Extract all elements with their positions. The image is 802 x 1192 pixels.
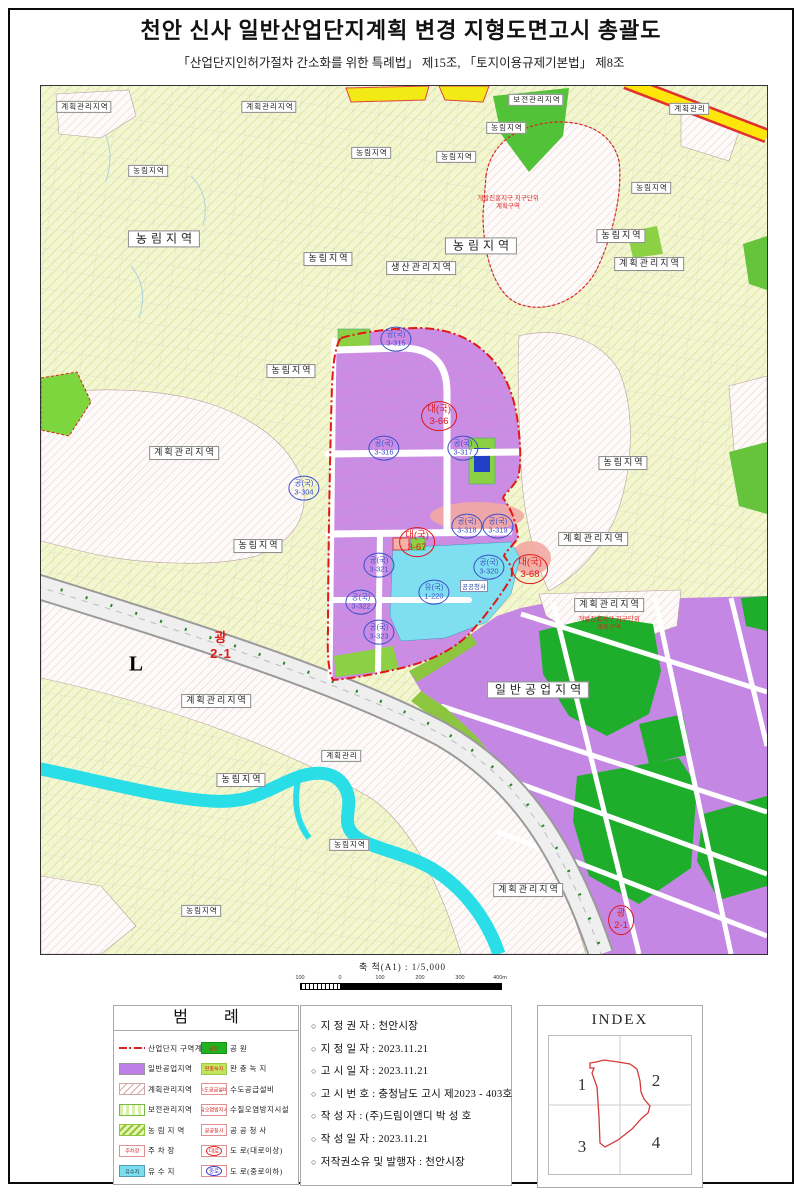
info-bullet: ○ [311,1134,317,1144]
legend-swatch-ygreen: 완충녹지 [201,1063,227,1075]
legend-item: 대로도 로(대로이상) [201,1141,295,1162]
legend-item-label: 계획관리지역 [148,1084,192,1095]
legend-item-label: 도 로(대로이상) [230,1145,283,1156]
legend-item: 공공청사공 공 청 사 [201,1120,295,1141]
info-item: ○지 정 일 자 : 2023.11.21 [311,1041,511,1064]
legend-column-right: 공원공 원완충녹지완 충 녹 지수도공급설비수도공급설비수질오염방지시설수질오염… [201,1038,295,1182]
legend-swatch-symbol: 중로 [206,1166,222,1176]
legend-swatch-cyan: 유수지 [119,1165,145,1177]
info-bullet: ○ [311,1066,317,1076]
scale-block: 축 척(A1) : 1/5,000 1000100200300400m [300,960,505,989]
legend-item-label: 산업단지 구역계 [148,1043,202,1054]
legend-swatch-symbol: 수질오염방지시설 [201,1106,227,1114]
legend-item: 수도공급설비수도공급설비 [201,1079,295,1100]
legend-item-label: 유 수 지 [148,1166,175,1177]
legend-swatch-symbox: 수질오염방지시설 [201,1104,227,1116]
legend-item: 공원공 원 [201,1038,295,1059]
legend-item-label: 공 공 청 사 [230,1125,267,1136]
legend-swatch-symbox: 공공청사 [201,1124,227,1136]
legend-item: 주차장주 차 장 [119,1141,201,1162]
legend-swatch-symbol: 대로 [206,1146,222,1156]
info-text: 작 성 자 : (주)드림이앤디 박 성 호 [321,1108,472,1123]
scale-tick: 100 [375,975,384,981]
scale-tick: 300 [455,975,464,981]
notice-info-box: ○지 정 권 자 : 천안시장○지 정 일 자 : 2023.11.21○고 시… [300,1005,512,1186]
legend-swatch-symbox: 주차장 [119,1145,145,1157]
legend-swatch-green: 공원 [201,1042,227,1054]
info-item: ○작 성 자 : (주)드림이앤디 박 성 호 [311,1108,511,1131]
legend-item: 완충녹지완 충 녹 지 [201,1059,295,1080]
legend-item-label: 일반공업지역 [148,1063,192,1074]
info-text: 지 정 권 자 : 천안시장 [321,1018,419,1033]
legend-swatch-symbol: 공원 [209,1044,218,1052]
legend-swatch-roadred: 대로 [201,1145,227,1157]
info-item: ○고 시 번 호 : 충청남도 고시 제2023 - 403호 [311,1086,511,1109]
legend-swatch-dotsgreen [119,1104,145,1116]
legend-swatch-hatchpink [119,1083,145,1095]
info-item: ○작 성 일 자 : 2023.11.21 [311,1131,511,1154]
legend-swatch-purple [119,1063,145,1075]
info-item: ○고 시 일 자 : 2023.11.21 [311,1063,511,1086]
index-number: 3 [578,1137,587,1157]
legend-item: 유수지유 수 지 [119,1161,201,1182]
index-title: INDEX [538,1012,702,1029]
legend-item: 일반공업지역 [119,1059,201,1080]
legend-item: 산업단지 구역계 [119,1038,201,1059]
legend-item-label: 수도공급설비 [230,1084,274,1095]
info-bullet: ○ [311,1157,317,1167]
scale-tick: 400m [493,975,507,981]
map-panel: 계획관리지역계획관리지역보전관리지역계획관리농림지역농림지역농림지역농림지역농림… [40,85,768,955]
legend-item-label: 완 충 녹 지 [230,1063,267,1074]
notice-page: 천안 신사 일반산업단지계획 변경 지형도면고시 총괄도 「산업단지인허가절차 … [0,0,802,1192]
legend-swatch-roadblue: 중로 [201,1165,227,1177]
legend-item-label: 농 림 지 역 [148,1125,185,1136]
scale-tick: 0 [338,975,341,981]
legend-swatch-hatchgreen [119,1124,145,1136]
scale-tick: 200 [415,975,424,981]
info-text: 저작권소유 및 발행자 : 천안시장 [321,1154,465,1169]
legend-item: 중로도 로(중로이하) [201,1161,295,1182]
info-bullet: ○ [311,1021,317,1031]
map-canvas [41,86,767,954]
legend-swatch-symbol: 주차장 [125,1147,139,1155]
scale-label: 축 척(A1) : 1/5,000 [300,960,505,973]
scale-tick: 100 [295,975,304,981]
legend-swatch-symbox: 수도공급설비 [201,1083,227,1095]
info-item: ○저작권소유 및 발행자 : 천안시장 [311,1154,511,1177]
title-block: 천안 신사 일반산업단지계획 변경 지형도면고시 총괄도 「산업단지인허가절차 … [0,13,802,71]
index-box: INDEX 1234 [537,1005,703,1188]
legend-item: 농 림 지 역 [119,1120,201,1141]
scale-bar: 1000100200300400m [300,983,505,989]
legend-column-left: 산업단지 구역계일반공업지역계획관리지역보전관리지역농 림 지 역주차장주 차 … [119,1038,201,1182]
legend-swatch-symbol: 수도공급설비 [201,1085,227,1093]
index-number: 1 [578,1075,587,1095]
legend-swatch-boundary [119,1043,145,1053]
info-text: 고 시 일 자 : 2023.11.21 [321,1063,429,1078]
page-subtitle: 「산업단지인허가절차 간소화를 위한 특례법」 제15조, 「토지이용규제기본법… [0,52,802,71]
info-text: 고 시 번 호 : 충청남도 고시 제2023 - 403호 [321,1086,513,1101]
index-grid: 1234 [548,1035,692,1175]
info-item: ○지 정 권 자 : 천안시장 [311,1018,511,1041]
legend-box: 범 례 산업단지 구역계일반공업지역계획관리지역보전관리지역농 림 지 역주차장… [113,1005,299,1185]
scale-bar-hatch-segment [300,983,342,990]
index-number: 4 [652,1133,661,1153]
info-text: 지 정 일 자 : 2023.11.21 [321,1041,429,1056]
info-bullet: ○ [311,1044,317,1054]
legend-item-label: 주 차 장 [148,1145,175,1156]
legend-item-label: 도 로(중로이하) [230,1166,283,1177]
info-bullet: ○ [311,1089,317,1099]
page-title: 천안 신사 일반산업단지계획 변경 지형도면고시 총괄도 [0,13,802,45]
legend-item: 수질오염방지시설수질오염방지시설 [201,1100,295,1121]
legend-item: 계획관리지역 [119,1079,201,1100]
info-text: 작 성 일 자 : 2023.11.21 [321,1131,429,1146]
info-bullet: ○ [311,1111,317,1121]
legend-title: 범 례 [114,1006,298,1031]
legend-swatch-symbol: 유수지 [125,1167,139,1175]
legend-columns: 산업단지 구역계일반공업지역계획관리지역보전관리지역농 림 지 역주차장주 차 … [114,1031,298,1186]
legend-item-label: 공 원 [230,1043,247,1054]
legend-swatch-symbol: 공공청사 [205,1126,224,1134]
index-grid-canvas [548,1035,692,1175]
legend-item-label: 보전관리지역 [148,1104,192,1115]
legend-item: 보전관리지역 [119,1100,201,1121]
scale-bar-solid-segment [340,983,502,990]
legend-swatch-symbol: 완충녹지 [205,1065,224,1073]
legend-item-label: 수질오염방지시설 [230,1104,289,1115]
index-number: 2 [652,1071,661,1091]
